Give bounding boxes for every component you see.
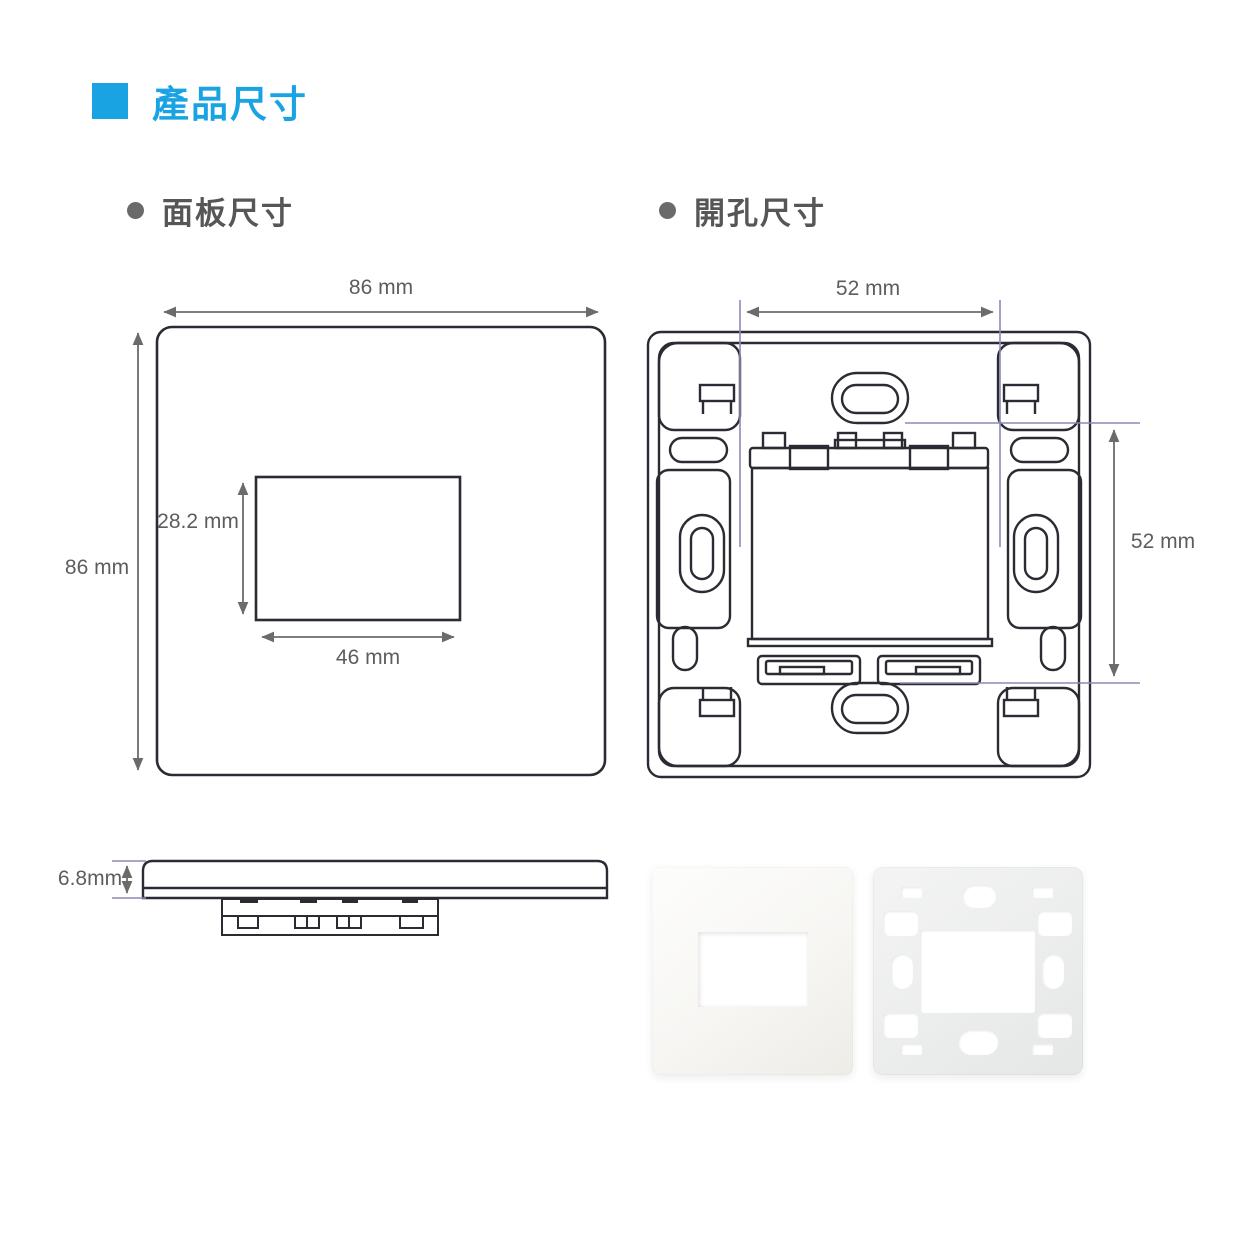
frame-photo-mini-slot: [1032, 887, 1053, 898]
frame-photo-top-screw-hole: [962, 885, 996, 908]
panel-dimension-lines: [138, 312, 598, 770]
frame-photo-mini-slot: [901, 887, 922, 898]
cutout-width-label: 52 mm: [836, 277, 900, 301]
frame-photo-center-opening: [920, 930, 1035, 1013]
front-plate-photo: [652, 867, 853, 1075]
central-module: [748, 433, 992, 684]
front-plate-photo-opening: [698, 932, 808, 1007]
side-profile-notches: [238, 916, 423, 928]
mounting-frame-photo: [873, 867, 1083, 1075]
side-profile-drawing: [143, 861, 607, 935]
panel-width-label: 86 mm: [349, 276, 413, 300]
frame-photo-mini-slot: [1032, 1044, 1053, 1055]
frame-photo-right-slot: [1042, 954, 1064, 989]
opening-height-label: 28.2 mm: [157, 510, 239, 534]
frame-photo-corner-notch: [883, 911, 918, 936]
frame-photo-corner-notch: [1037, 1013, 1072, 1038]
frame-photo-corner-notch: [1037, 911, 1072, 936]
frame-photo-corner-notch: [883, 1013, 918, 1038]
opening-width-label: 46 mm: [336, 646, 400, 670]
frame-photo-mini-slot: [901, 1044, 922, 1055]
frame-inner-outline: [659, 343, 1079, 766]
cutout-frame-drawing: [648, 332, 1090, 777]
product-dimensions-page: 產品尺寸 面板尺寸 開孔尺寸: [0, 0, 1250, 1250]
frame-outer-outline: [648, 332, 1090, 777]
cutout-dimension-lines: [747, 312, 1114, 676]
panel-outline: [157, 327, 605, 775]
frame-photo-bottom-screw-hole: [958, 1030, 998, 1055]
panel-height-label: 86 mm: [65, 556, 129, 580]
panel-front-drawing: [157, 327, 605, 775]
panel-opening-outline: [256, 477, 460, 620]
cutout-height-label: 52 mm: [1131, 530, 1195, 554]
frame-photo-left-slot: [891, 954, 913, 989]
thickness-label: 6.8mm: [58, 867, 122, 891]
